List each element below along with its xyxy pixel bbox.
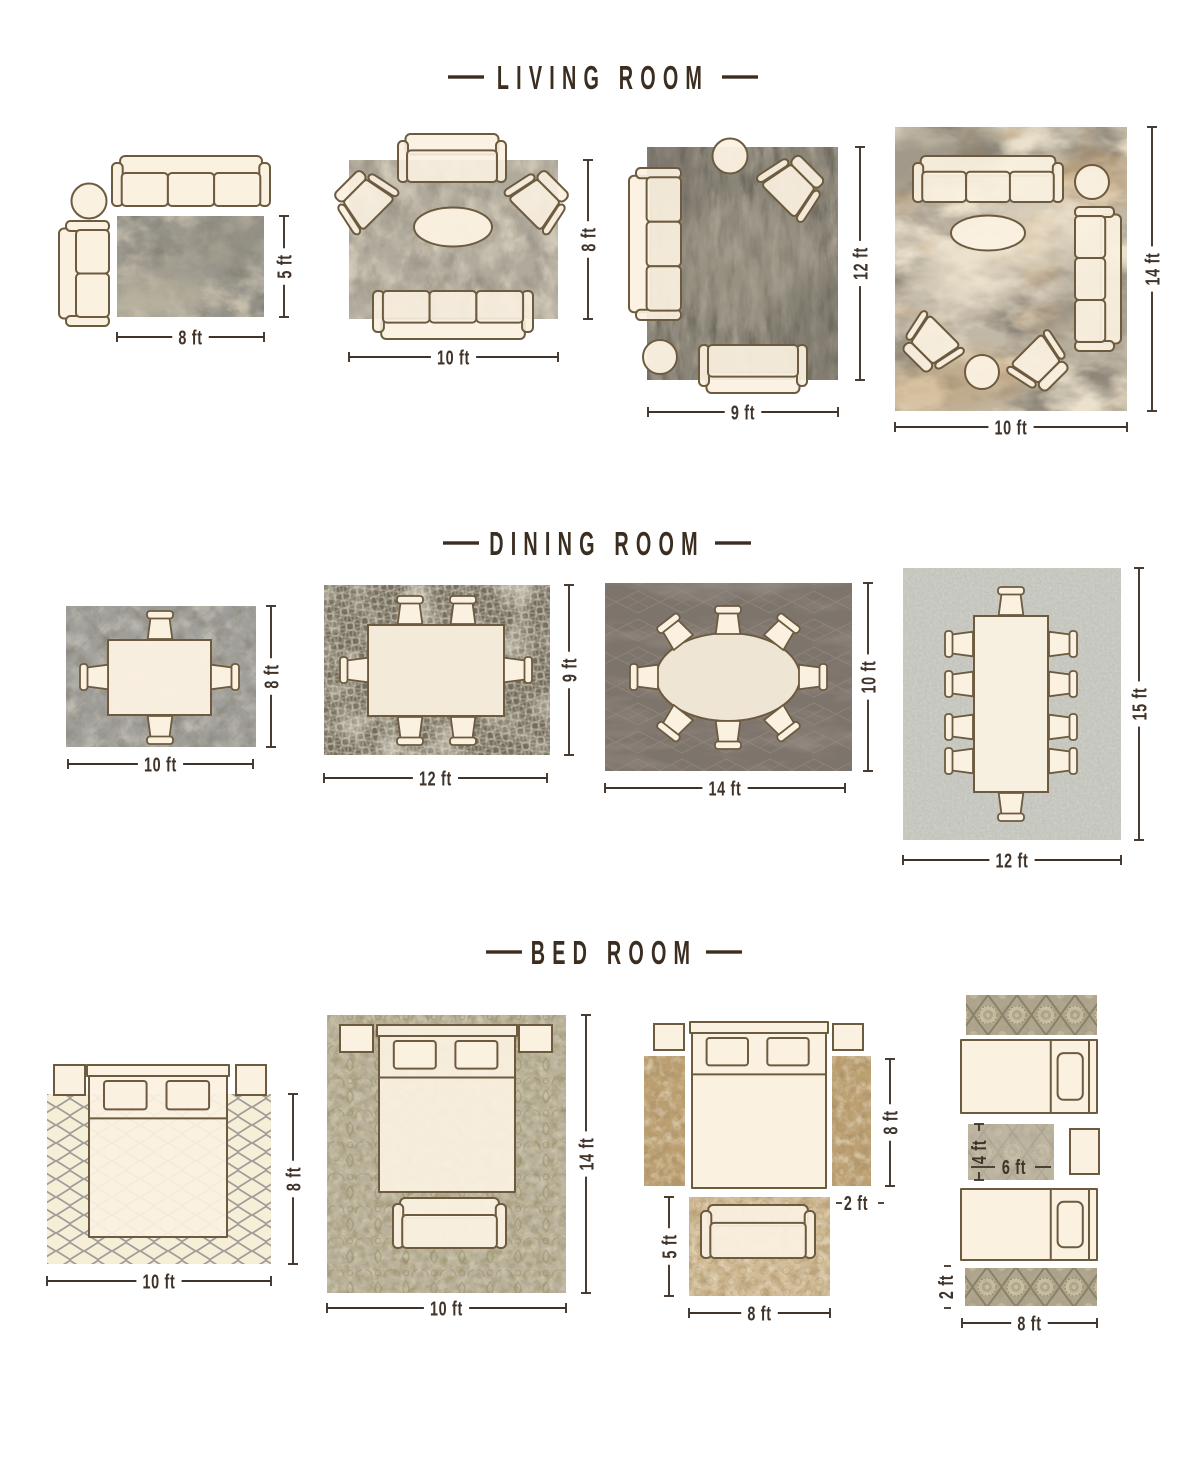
svg-text:8 ft: 8 ft bbox=[879, 1110, 902, 1134]
svg-text:14 ft: 14 ft bbox=[709, 777, 742, 800]
svg-text:12 ft: 12 ft bbox=[419, 767, 452, 790]
svg-text:9 ft: 9 ft bbox=[731, 401, 755, 424]
svg-text:14 ft: 14 ft bbox=[1141, 253, 1164, 286]
svg-text:6 ft: 6 ft bbox=[1002, 1155, 1026, 1178]
svg-text:2 ft: 2 ft bbox=[934, 1275, 957, 1299]
svg-text:8 ft: 8 ft bbox=[178, 326, 202, 349]
svg-text:10 ft: 10 ft bbox=[143, 1270, 176, 1293]
svg-text:8 ft: 8 ft bbox=[1017, 1312, 1041, 1335]
svg-text:8 ft: 8 ft bbox=[747, 1302, 771, 1325]
svg-text:15 ft: 15 ft bbox=[1128, 688, 1151, 721]
svg-text:10 ft: 10 ft bbox=[995, 416, 1028, 439]
svg-text:8 ft: 8 ft bbox=[260, 664, 283, 688]
svg-text:BED ROOM: BED ROOM bbox=[531, 934, 697, 972]
svg-text:DINING ROOM: DINING ROOM bbox=[489, 525, 705, 563]
svg-text:10 ft: 10 ft bbox=[857, 661, 880, 694]
svg-text:10 ft: 10 ft bbox=[430, 1297, 463, 1320]
svg-text:14 ft: 14 ft bbox=[575, 1138, 598, 1171]
svg-text:8 ft: 8 ft bbox=[282, 1167, 305, 1191]
svg-text:10 ft: 10 ft bbox=[437, 346, 470, 369]
svg-text:12 ft: 12 ft bbox=[849, 247, 872, 280]
svg-text:8 ft: 8 ft bbox=[577, 227, 600, 251]
svg-text:5 ft: 5 ft bbox=[273, 254, 296, 278]
svg-text:10 ft: 10 ft bbox=[144, 753, 177, 776]
svg-text:9 ft: 9 ft bbox=[558, 658, 581, 682]
svg-text:LIVING ROOM: LIVING ROOM bbox=[497, 59, 709, 97]
svg-text:12 ft: 12 ft bbox=[996, 849, 1029, 872]
svg-text:4 ft: 4 ft bbox=[967, 1140, 990, 1164]
svg-text:5 ft: 5 ft bbox=[658, 1234, 681, 1258]
svg-text:2 ft: 2 ft bbox=[844, 1191, 868, 1214]
